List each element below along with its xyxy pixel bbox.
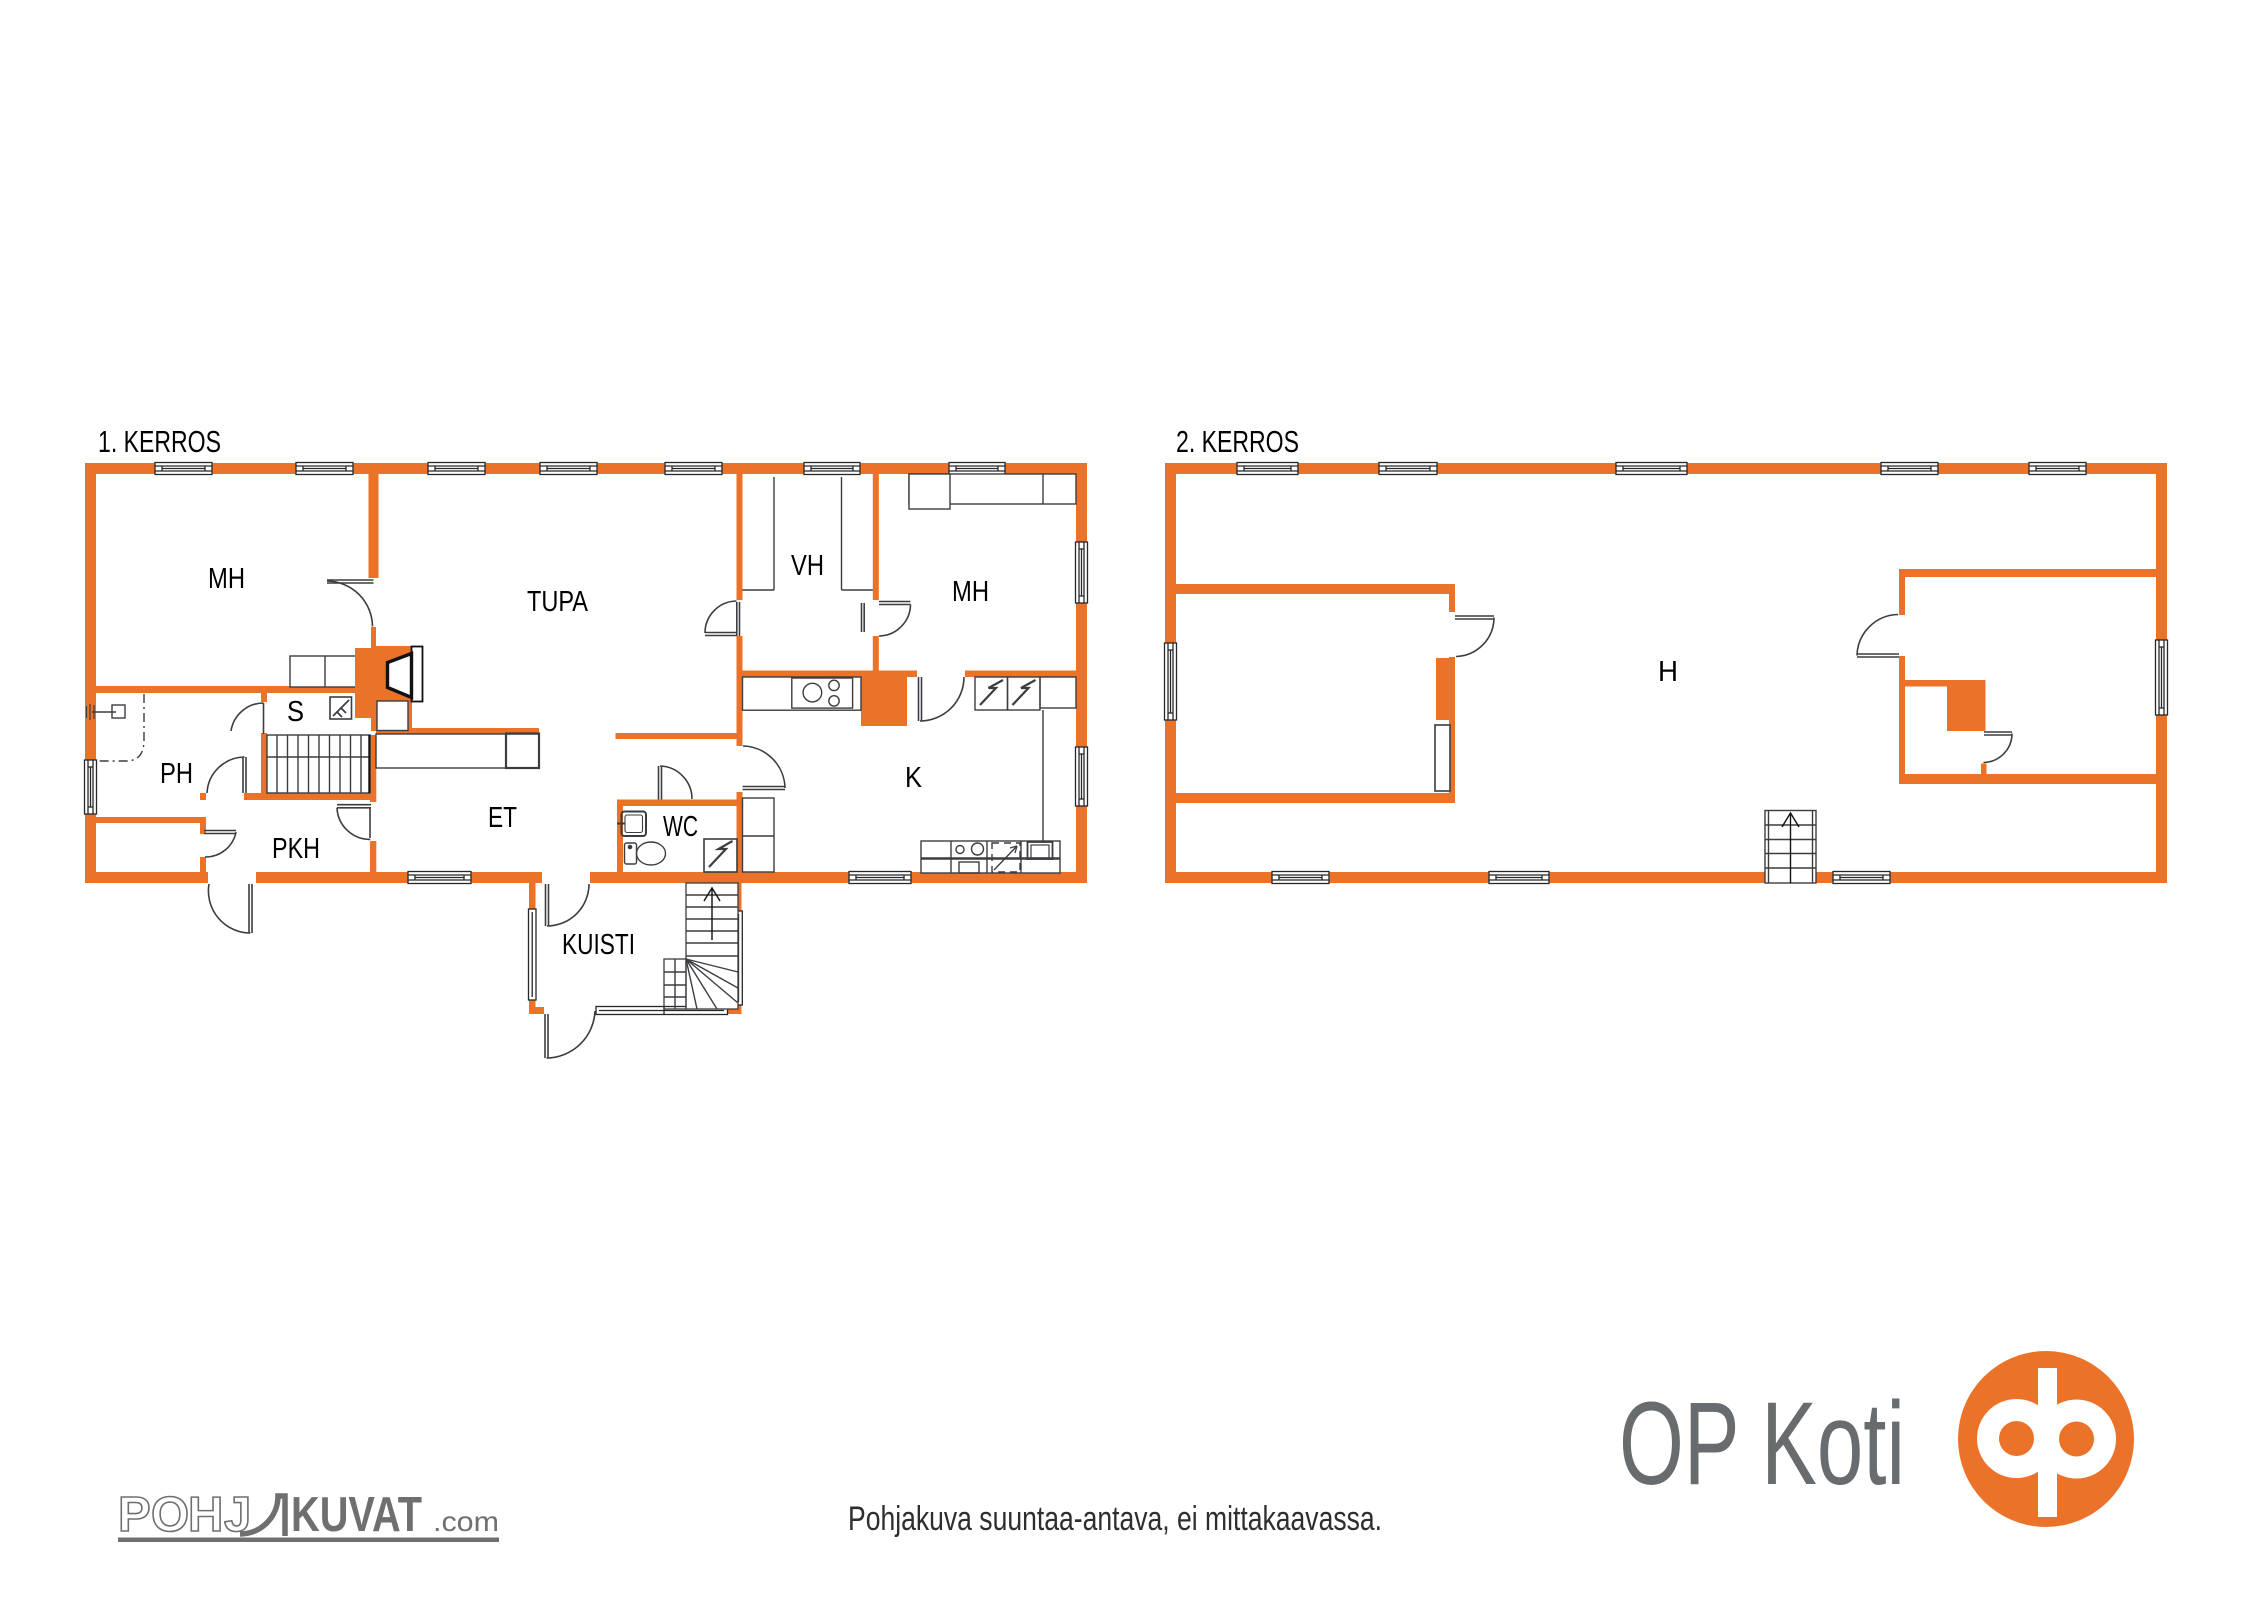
svg-text:H: H <box>1658 656 1678 688</box>
svg-text:2. KERROS: 2. KERROS <box>1176 424 1299 459</box>
svg-text:.com: .com <box>433 1506 499 1537</box>
svg-text:WC: WC <box>663 811 698 843</box>
svg-text:1. KERROS: 1. KERROS <box>98 424 221 459</box>
svg-text:PKH: PKH <box>272 833 320 865</box>
svg-text:MH: MH <box>208 563 245 595</box>
svg-text:KUISTI: KUISTI <box>562 929 635 961</box>
svg-text:OP Koti: OP Koti <box>1619 1378 1905 1510</box>
svg-text:Pohjakuva suuntaa-antava, ei m: Pohjakuva suuntaa-antava, ei mittakaavas… <box>848 1500 1382 1538</box>
svg-text:TUPA: TUPA <box>527 586 589 618</box>
svg-text:H: H <box>188 1488 223 1542</box>
svg-text:K: K <box>905 762 923 794</box>
svg-text:KUVAT: KUVAT <box>291 1488 422 1542</box>
svg-text:S: S <box>287 696 304 728</box>
svg-text:O: O <box>151 1488 189 1542</box>
svg-text:PH: PH <box>160 758 193 790</box>
svg-text:VH: VH <box>791 550 824 582</box>
svg-text:ET: ET <box>488 802 517 834</box>
svg-text:P: P <box>118 1488 151 1542</box>
svg-text:MH: MH <box>952 576 989 608</box>
